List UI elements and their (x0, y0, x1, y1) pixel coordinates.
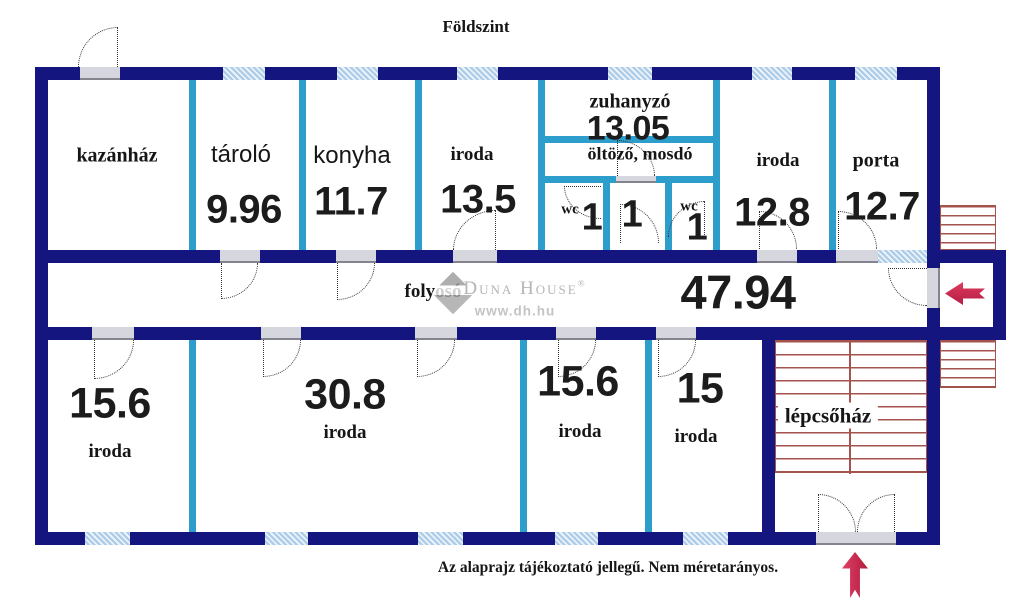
partition-wall (645, 340, 652, 532)
door-sill (836, 250, 878, 263)
room-label-iroda-156b: iroda (559, 421, 602, 443)
door-sill (927, 268, 940, 308)
window (418, 532, 463, 545)
door-sill (220, 250, 260, 263)
partition-wall (299, 80, 306, 250)
room-label-lepcsohaz: lépcsőház (778, 403, 878, 429)
outside-stairs-lower (940, 340, 996, 388)
room-label-porta: porta (853, 150, 900, 173)
room-area-iroda-15: 15 (677, 365, 724, 414)
floor-plan: Földszint (0, 0, 1024, 609)
partition-wall (189, 80, 196, 250)
outer-wall-bottom (35, 532, 940, 545)
door-sill (92, 327, 134, 340)
window (223, 67, 265, 80)
door-arc (78, 27, 118, 67)
window (85, 532, 130, 545)
door-arc (417, 340, 455, 377)
window (752, 67, 792, 80)
vestibule-wall-bottom (940, 327, 1006, 340)
window (877, 250, 927, 263)
room-label-konyha: konyha (313, 142, 390, 170)
door-sill (415, 327, 457, 340)
window (683, 532, 728, 545)
partition-wall (665, 183, 672, 250)
room-label-iroda-308: iroda (324, 422, 367, 444)
outside-stairs-upper (940, 205, 996, 250)
door-arc (94, 340, 134, 379)
room-label-iroda-156a: iroda (89, 441, 132, 463)
window (265, 532, 308, 545)
window (855, 67, 897, 80)
room-label-wc-bal: wc (561, 202, 579, 219)
room-label-iroda-15: iroda (675, 426, 718, 448)
door-sill (556, 327, 596, 340)
dunahouse-watermark: Duna House® (463, 278, 584, 300)
room-label-tarolo: tároló (211, 141, 271, 169)
partition-wall (520, 340, 527, 532)
room-area-iroda-felso: 13.5 (440, 178, 516, 223)
door-sill (616, 176, 656, 183)
room-area-iroda-308: 30.8 (304, 371, 386, 420)
door-arc (337, 263, 375, 300)
room-area-porta: 12.7 (844, 185, 920, 230)
floor-title: Földszint (442, 17, 509, 37)
room-area-folyoso: 47.94 (680, 265, 795, 320)
partition-wall (603, 183, 610, 250)
room-label-iroda-128: iroda (757, 150, 800, 172)
door-arc-double-left (818, 494, 856, 532)
door-sill (757, 250, 797, 263)
room-area-iroda-156a: 15.6 (69, 380, 151, 429)
partition-wall (189, 340, 196, 532)
north-arrow-icon (842, 552, 868, 598)
door-arc (888, 268, 927, 306)
door-sill (261, 327, 301, 340)
room-label-kazanhaz: kazánház (76, 145, 157, 168)
door-sill (656, 327, 696, 340)
door-arc-double-right (857, 494, 895, 532)
disclaimer-note: Az alaprajz tájékoztató jellegű. Nem mér… (438, 559, 778, 577)
room-area-iroda-128: 12.8 (734, 191, 810, 236)
window (337, 67, 378, 80)
door-sill (816, 532, 896, 545)
door-arc (263, 340, 301, 377)
partition-wall (829, 80, 836, 250)
partition-wall (713, 80, 720, 250)
partition-wall (538, 80, 545, 250)
window (608, 67, 652, 80)
entrance-arrow-icon (945, 281, 985, 306)
dunahouse-url: www.dh.hu (475, 304, 556, 319)
window (555, 532, 598, 545)
door-sill (453, 250, 497, 263)
room-area-wc-jobb: 1 (687, 207, 708, 250)
room-label-iroda-felso: iroda (451, 144, 494, 166)
corridor-wall-bottom (35, 327, 940, 340)
room-label-oltozo: öltöző, mosdó (588, 144, 693, 165)
staircase-wall (762, 340, 775, 532)
window (457, 67, 498, 80)
door-sill (80, 67, 120, 80)
room-area-tarolo: 9.96 (206, 188, 282, 233)
room-area-kozepso: 1 (622, 194, 643, 237)
registered-mark: ® (578, 279, 585, 289)
door-sill (336, 250, 376, 263)
outer-wall-left (35, 67, 48, 545)
room-area-iroda-156b: 15.6 (537, 358, 619, 407)
room-area-wc-bal: 1 (582, 197, 603, 240)
dunahouse-brand-text: Duna House (463, 278, 577, 299)
partition-wall (415, 80, 422, 250)
room-area-konyha: 11.7 (314, 180, 388, 225)
door-arc (221, 263, 258, 299)
